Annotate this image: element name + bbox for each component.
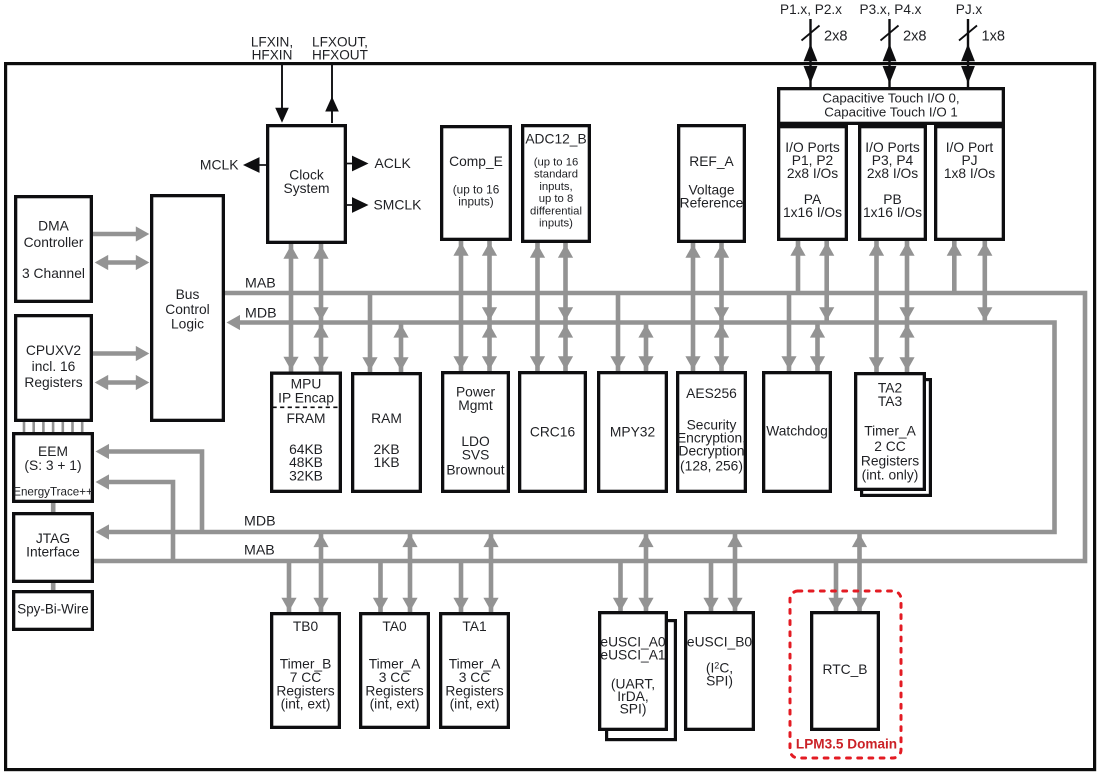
svg-text:DMA: DMA: [38, 219, 69, 234]
svg-text:Decryption: Decryption: [679, 444, 745, 459]
svg-text:32KB: 32KB: [289, 468, 323, 483]
svg-text:Capacitive Touch I/O 1: Capacitive Touch I/O 1: [824, 105, 958, 120]
svg-text:standard: standard: [534, 169, 578, 181]
svg-text:MAB: MAB: [245, 276, 276, 292]
svg-text:(int. only): (int. only): [862, 467, 919, 482]
svg-text:SPI): SPI): [706, 674, 733, 689]
svg-text:MAB: MAB: [244, 543, 275, 559]
svg-text:CRC16: CRC16: [530, 424, 576, 439]
svg-text:1x8 I/Os: 1x8 I/Os: [944, 166, 995, 181]
svg-text:MPU: MPU: [291, 377, 322, 392]
svg-text:Logic: Logic: [171, 317, 204, 332]
svg-text:EEM: EEM: [38, 444, 68, 459]
svg-text:Timer_A: Timer_A: [864, 424, 916, 439]
svg-text:(int, ext): (int, ext): [370, 696, 420, 711]
svg-text:Capacitive Touch I/O 0,: Capacitive Touch I/O 0,: [822, 91, 959, 106]
svg-text:Controller: Controller: [24, 235, 84, 250]
svg-text:2x8 I/Os: 2x8 I/Os: [867, 166, 918, 181]
svg-text:AES256: AES256: [686, 386, 737, 401]
svg-text:(128, 256): (128, 256): [680, 459, 743, 474]
svg-text:2x8 I/Os: 2x8 I/Os: [787, 166, 838, 181]
svg-text:FRAM: FRAM: [286, 411, 325, 426]
svg-text:(int, ext): (int, ext): [281, 696, 331, 711]
svg-text:HFXIN: HFXIN: [252, 48, 293, 63]
svg-text:(int, ext): (int, ext): [450, 696, 500, 711]
svg-text:Bus: Bus: [176, 287, 200, 302]
svg-text:ACLK: ACLK: [375, 155, 412, 171]
svg-text:REF_A: REF_A: [689, 154, 734, 169]
svg-text:RAM: RAM: [371, 411, 402, 426]
svg-text:2x8: 2x8: [903, 29, 927, 45]
svg-text:SMCLK: SMCLK: [374, 196, 423, 212]
svg-text:CPUXV2: CPUXV2: [26, 343, 81, 358]
svg-text:System: System: [284, 181, 330, 196]
svg-text:TB0: TB0: [293, 619, 319, 634]
svg-text:incl. 16: incl. 16: [32, 359, 76, 374]
svg-text:(up to 16: (up to 16: [534, 157, 579, 169]
svg-text:eUSCI_A1: eUSCI_A1: [600, 647, 665, 662]
svg-text:1x16 I/Os: 1x16 I/Os: [863, 205, 922, 220]
svg-text:SPI): SPI): [620, 701, 647, 716]
svg-text:Registers: Registers: [24, 375, 82, 390]
svg-text:MCLK: MCLK: [200, 156, 239, 172]
svg-text:RTC_B: RTC_B: [823, 662, 868, 677]
svg-text:eUSCI_B0: eUSCI_B0: [687, 635, 753, 650]
svg-text:Reference: Reference: [680, 196, 744, 211]
svg-text:1KB: 1KB: [373, 455, 399, 470]
svg-text:inputs): inputs): [539, 218, 573, 230]
svg-text:MPY32: MPY32: [610, 424, 655, 439]
svg-text:2 CC: 2 CC: [874, 439, 905, 454]
svg-text:up to 8: up to 8: [539, 193, 574, 205]
svg-text:1x8: 1x8: [982, 29, 1006, 45]
svg-text:Control: Control: [165, 302, 209, 317]
svg-text:SVS: SVS: [462, 448, 490, 463]
svg-text:MDB: MDB: [245, 306, 277, 322]
svg-text:2x8: 2x8: [824, 29, 848, 45]
svg-text:MDB: MDB: [244, 514, 276, 530]
svg-text:1x16 I/Os: 1x16 I/Os: [783, 205, 842, 220]
svg-text:ADC12_B: ADC12_B: [525, 132, 586, 147]
svg-text:TA3: TA3: [878, 394, 903, 409]
svg-text:Spy-Bi-Wire: Spy-Bi-Wire: [17, 602, 88, 617]
svg-text:Brownout: Brownout: [446, 463, 504, 478]
svg-text:PJ.x: PJ.x: [956, 2, 983, 17]
svg-text:Mgmt: Mgmt: [458, 398, 493, 413]
svg-text:3 Channel: 3 Channel: [22, 266, 85, 281]
svg-text:P3.x, P4.x: P3.x, P4.x: [860, 2, 922, 17]
svg-text:TA1: TA1: [462, 619, 486, 634]
svg-text:differential: differential: [530, 205, 582, 217]
svg-text:Interface: Interface: [26, 545, 80, 560]
svg-text:P1.x, P2.x: P1.x, P2.x: [780, 2, 842, 17]
svg-text:inputs): inputs): [458, 194, 493, 208]
svg-text:IP Encap: IP Encap: [278, 390, 334, 405]
svg-text:Watchdog: Watchdog: [766, 423, 828, 438]
svg-text:Comp_E: Comp_E: [449, 154, 503, 169]
svg-text:inputs,: inputs,: [539, 181, 572, 193]
svg-text:HFXOUT: HFXOUT: [312, 48, 368, 63]
svg-text:EnergyTrace++: EnergyTrace++: [13, 486, 93, 499]
svg-text:(S: 3 + 1): (S: 3 + 1): [24, 458, 81, 473]
svg-text:TA0: TA0: [382, 619, 407, 634]
svg-text:LPM3.5 Domain: LPM3.5 Domain: [796, 736, 897, 751]
